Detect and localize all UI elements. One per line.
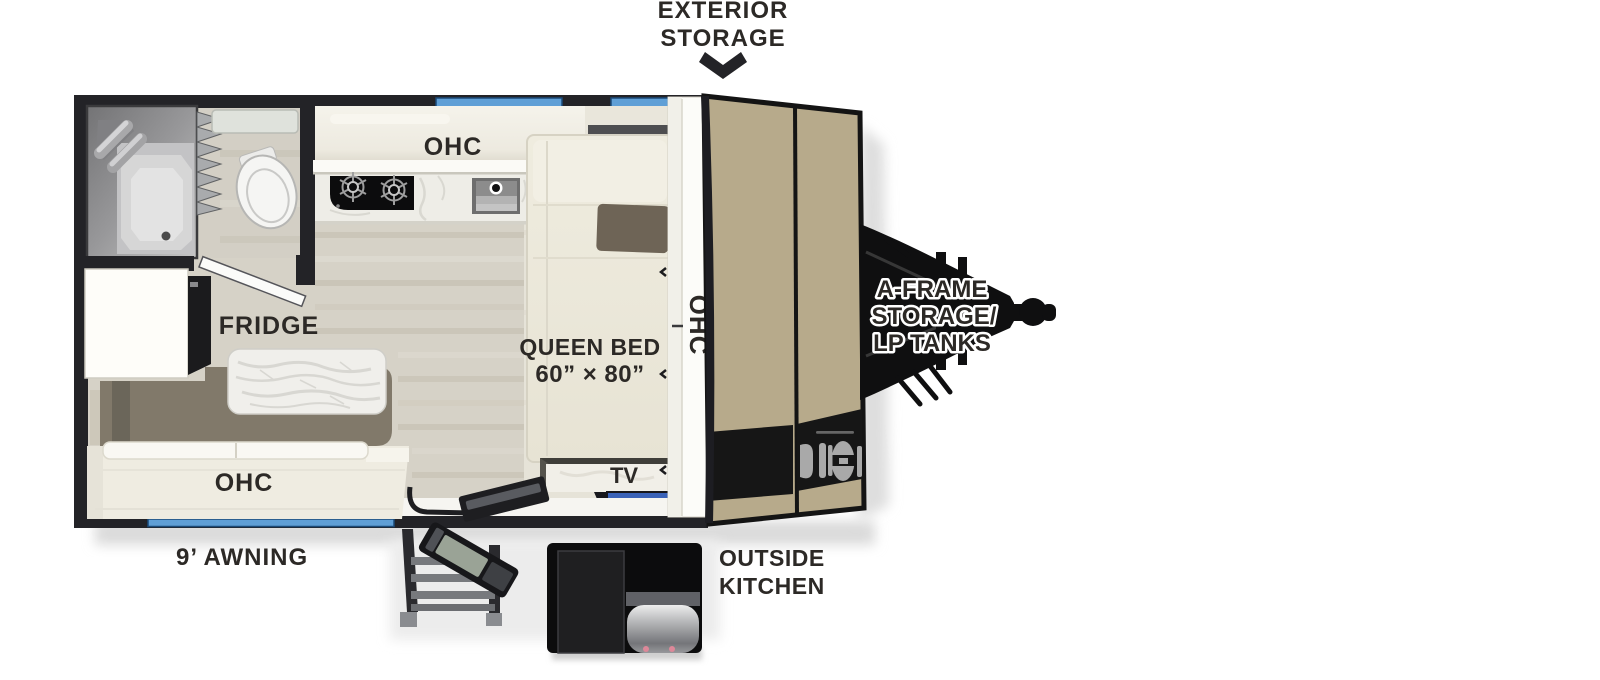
svg-text:OHC: OHC bbox=[424, 133, 483, 161]
svg-text:TV: TV bbox=[610, 463, 638, 488]
svg-text:OUTSIDE: OUTSIDE bbox=[719, 545, 825, 571]
svg-text:EXTERIOR: EXTERIOR bbox=[658, 0, 789, 24]
svg-text:FRIDGE: FRIDGE bbox=[219, 312, 319, 340]
svg-text:60” × 80”: 60” × 80” bbox=[535, 361, 644, 388]
svg-text:OHC: OHC bbox=[215, 469, 274, 497]
svg-text:A-FRAME: A-FRAME bbox=[877, 276, 988, 303]
svg-text:KITCHEN: KITCHEN bbox=[719, 573, 825, 599]
svg-text:9’ AWNING: 9’ AWNING bbox=[176, 544, 308, 571]
svg-text:QUEEN BED: QUEEN BED bbox=[519, 334, 660, 360]
svg-text:LP TANKS: LP TANKS bbox=[873, 330, 991, 357]
svg-text:STORAGE: STORAGE bbox=[660, 25, 785, 52]
svg-text:STORAGE/: STORAGE/ bbox=[872, 303, 997, 330]
